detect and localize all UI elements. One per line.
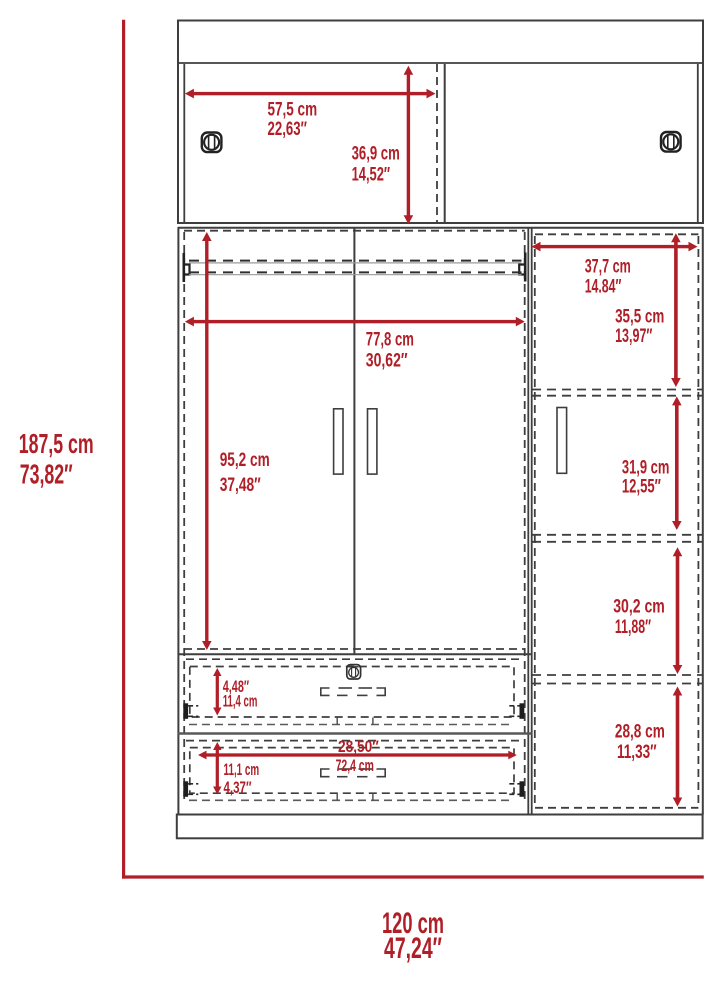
svg-text:14,52″: 14,52″ [352,163,391,185]
svg-text:30,62″: 30,62″ [366,350,408,372]
svg-text:77,8 cm: 77,8 cm [366,328,414,350]
svg-text:11,1 cm: 11,1 cm [224,760,260,779]
svg-text:47,24″: 47,24″ [384,932,442,965]
svg-text:37,7 cm: 37,7 cm [585,256,631,278]
svg-text:11,88″: 11,88″ [615,616,651,638]
svg-text:4,37″: 4,37″ [224,778,252,797]
svg-text:13,97″: 13,97″ [615,325,652,347]
svg-text:14.84″: 14.84″ [585,276,622,298]
svg-text:30,2 cm: 30,2 cm [613,596,665,618]
svg-text:28,8 cm: 28,8 cm [615,721,665,743]
svg-text:72,4 cm: 72,4 cm [336,756,374,775]
svg-text:36,9 cm: 36,9 cm [352,143,400,165]
svg-text:73,82″: 73,82″ [20,459,73,490]
svg-text:37,48″: 37,48″ [220,474,261,496]
svg-text:22,63″: 22,63″ [268,118,307,140]
svg-text:28,50″: 28,50″ [338,737,379,756]
svg-text:187,5 cm: 187,5 cm [19,428,94,459]
svg-text:12,55″: 12,55″ [622,476,661,498]
svg-text:11,4 cm: 11,4 cm [223,691,258,710]
svg-text:11,33″: 11,33″ [617,741,657,763]
svg-text:95,2 cm: 95,2 cm [220,449,270,471]
